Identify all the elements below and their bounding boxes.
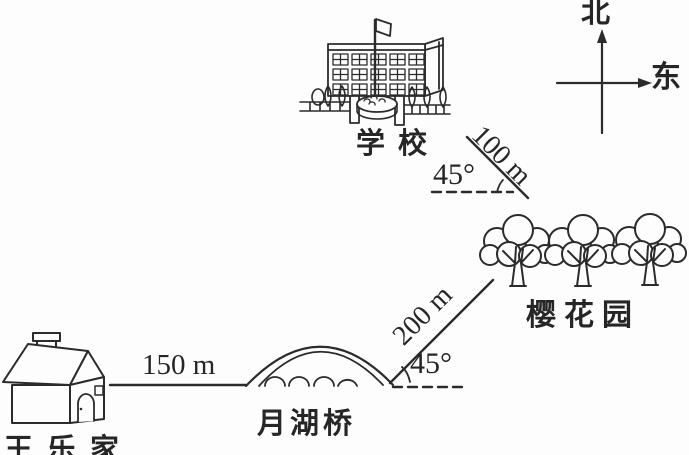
angle-arc-lower [402,367,410,382]
angle-lower-label: 45° [410,349,452,379]
cherry-trees-icon [480,214,686,286]
compass-icon [557,29,652,133]
east-label: 东 [651,63,681,93]
bridge-inner-arch [259,352,383,386]
diagram-artwork [0,0,689,455]
school-building-icon [300,19,450,125]
bridge-small-arches [265,377,357,386]
bridge-label: 月湖桥 [257,410,356,439]
school-label: 学校 [356,130,440,159]
angle-arc-upper [497,180,503,192]
house-icon [3,333,104,423]
route-diagram: 北 东 学校 100 m 45° 樱花园 200 m 45° 150 m 月湖桥… [0,0,689,455]
distance-house-bridge: 150 m [142,351,215,380]
tree-icon [612,214,686,285]
tree-icon [545,215,619,286]
garden-label: 樱花园 [526,301,640,331]
house-front-wall [12,385,70,423]
arch-bridge-icon [246,347,393,386]
house-label: 王乐家 [4,436,133,455]
north-label: 北 [581,0,610,28]
flag-icon [376,19,391,36]
tree-icon [480,215,554,286]
angle-upper-label: 45° [433,160,475,190]
